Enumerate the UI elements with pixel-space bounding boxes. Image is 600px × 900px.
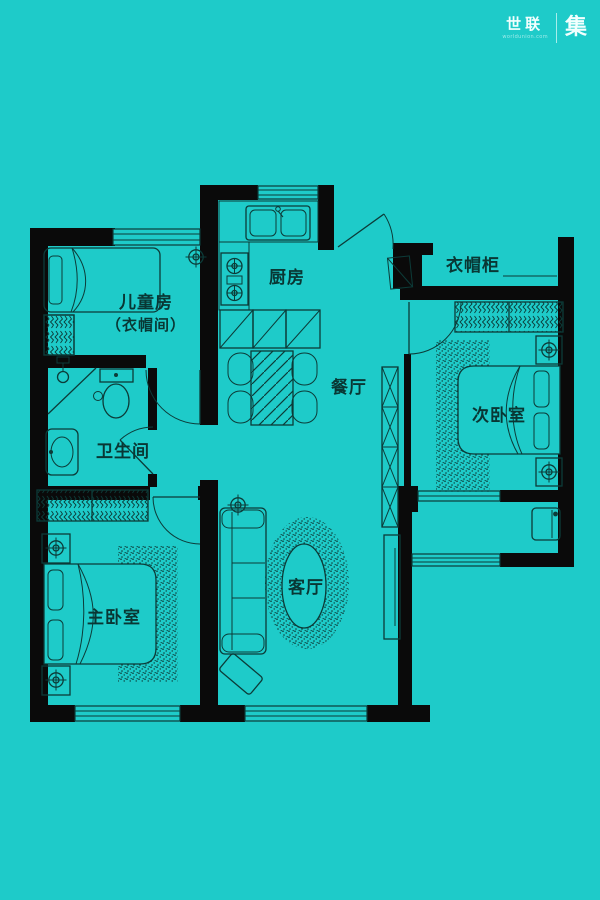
window-bedroom-balcony [418,491,500,501]
master-bedroom-door [153,497,200,544]
bathroom-sink [46,429,78,475]
window-master-bedroom [75,706,180,721]
window-kitchen [258,186,318,199]
hallway-cabinet [382,367,398,527]
floor-plan: 儿童房 （衣帽间） 厨房 衣帽柜 餐厅 次卧室 卫生间 主卧室 客厅 [0,0,600,900]
dining-table [251,351,293,425]
window-balcony [412,554,500,566]
window-living-room [245,706,367,721]
room-label-second-bedroom: 次卧室 [472,405,526,426]
master-wardrobe [37,490,148,521]
window-children-room [113,229,200,245]
tv-cabinet [384,535,400,639]
master-bedroom-furniture [37,490,178,695]
room-label-children: 儿童房 [118,292,173,313]
room-label-cloak-cabinet: 衣帽柜 [446,255,500,276]
room-label-bathroom: 卫生间 [96,441,150,462]
room-label-children-sub: （衣帽间） [106,316,186,334]
ottoman [219,653,264,696]
children-wardrobe [44,315,74,355]
room-label-dining: 餐厅 [331,377,367,398]
room-label-master-bedroom: 主卧室 [87,607,141,628]
side-table-lamp [228,495,249,516]
kitchen-sink [246,206,310,240]
toilet [94,369,134,418]
dining-cabinets [220,310,320,348]
second-wardrobe [455,302,563,332]
washing-machine [532,508,560,540]
sofa [220,508,266,654]
entry-door [338,214,393,249]
kitchen-furniture [219,201,318,310]
room-label-kitchen: 厨房 [269,267,305,288]
room-label-living: 客厅 [287,577,324,598]
kitchen-stove [221,253,248,305]
